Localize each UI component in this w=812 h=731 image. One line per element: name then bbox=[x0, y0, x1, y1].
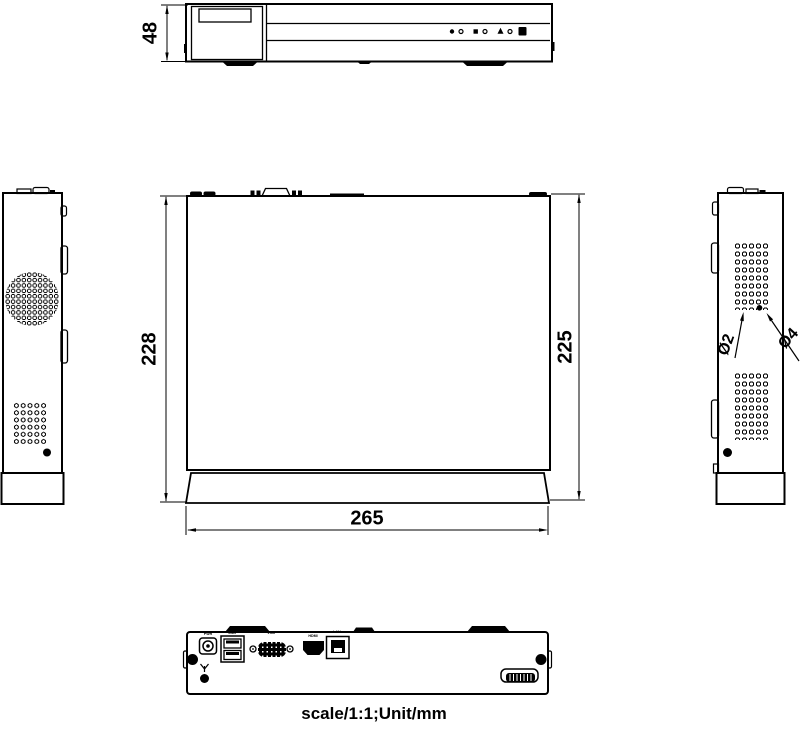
hdd-led-ring-icon bbox=[483, 30, 487, 34]
arrowhead bbox=[164, 493, 167, 502]
large-vent-hole bbox=[757, 305, 763, 311]
rear-tab bbox=[257, 191, 261, 197]
ir-window-icon bbox=[519, 27, 527, 36]
vga-screw-pin bbox=[252, 648, 254, 650]
side-nub bbox=[548, 651, 552, 668]
arrowhead bbox=[577, 491, 580, 500]
rear-tab bbox=[298, 191, 302, 197]
chassis-screw bbox=[536, 654, 547, 665]
right-side-bezel bbox=[717, 473, 785, 504]
rear-corner-bump bbox=[204, 192, 216, 197]
drawing-linework bbox=[0, 0, 812, 731]
vga-port-label: VGA bbox=[267, 631, 275, 635]
dimension-228 bbox=[160, 196, 188, 502]
rear-ridge bbox=[330, 194, 364, 197]
top-mark bbox=[50, 190, 55, 193]
power-led-icon bbox=[450, 29, 454, 33]
hdmi-port-label: HDMI bbox=[308, 634, 317, 638]
front-body-outline bbox=[186, 4, 552, 62]
front-left-nub bbox=[184, 44, 187, 53]
network-led-icon bbox=[498, 28, 504, 34]
arrowhead bbox=[767, 313, 774, 322]
power-jack-pin bbox=[206, 644, 210, 648]
arrowhead bbox=[187, 528, 196, 531]
left-side-body bbox=[3, 193, 62, 473]
vga-screw-pin bbox=[289, 648, 291, 650]
dimension-depth-body-label: 225 bbox=[555, 330, 578, 363]
top-body-outline bbox=[187, 196, 550, 470]
lan-port-label: LAN bbox=[333, 630, 340, 634]
arrowhead bbox=[577, 194, 580, 203]
dimension-48 bbox=[161, 5, 188, 62]
side-nub bbox=[184, 651, 188, 668]
arrowhead bbox=[164, 196, 167, 205]
power-port-label: PWR bbox=[204, 632, 212, 636]
arrowhead bbox=[165, 5, 168, 14]
lan-port-clip bbox=[334, 648, 342, 652]
rear-foot bbox=[353, 628, 375, 633]
front-foot-left bbox=[222, 62, 258, 67]
front-left-panel bbox=[192, 7, 263, 60]
dimension-width-label: 265 bbox=[350, 508, 383, 531]
front-foot-right bbox=[462, 62, 508, 67]
rear-foot bbox=[467, 626, 510, 632]
scale-unit-caption: scale/1:1;Unit/mm bbox=[301, 704, 447, 724]
power-led-ring-icon bbox=[459, 30, 463, 34]
technical-drawing: 48 228 225 265 Ø2 Ø4 PWR USB VGA HDMI LA… bbox=[0, 0, 812, 731]
front-foot-middle bbox=[357, 62, 372, 65]
screw-hole bbox=[723, 448, 732, 457]
usb-tongue bbox=[226, 641, 239, 644]
dimension-height-label: 48 bbox=[140, 22, 163, 44]
front-view bbox=[184, 4, 555, 66]
left-side-view bbox=[2, 188, 68, 505]
vga-connector-bump bbox=[262, 189, 290, 197]
left-side-bezel bbox=[2, 473, 64, 504]
rear-view bbox=[184, 626, 552, 694]
network-led-ring-icon bbox=[508, 30, 512, 34]
dimension-depth-overall-label: 228 bbox=[139, 332, 162, 365]
chassis-screw bbox=[187, 654, 198, 665]
arrowhead bbox=[740, 312, 744, 321]
hdmi-port bbox=[303, 641, 324, 655]
rear-tab bbox=[292, 191, 296, 197]
top-view bbox=[186, 189, 550, 504]
top-front-bezel bbox=[186, 473, 549, 503]
top-mark bbox=[760, 190, 766, 193]
rear-right-bump bbox=[529, 192, 547, 196]
ground-screw bbox=[200, 674, 209, 683]
front-right-nub bbox=[552, 42, 555, 51]
usb-port-label: USB bbox=[228, 631, 236, 635]
front-display-window bbox=[199, 9, 251, 22]
rear-tab bbox=[251, 191, 255, 197]
rear-corner-bump bbox=[190, 192, 202, 197]
arrowhead bbox=[539, 528, 548, 531]
ground-symbol-icon bbox=[205, 664, 209, 669]
callout-hole-small bbox=[735, 312, 744, 358]
hdd-led-icon bbox=[474, 29, 478, 33]
rear-slot bbox=[501, 669, 538, 682]
arrowhead bbox=[165, 53, 168, 62]
screw-hole bbox=[43, 449, 51, 457]
usb-tongue bbox=[226, 652, 239, 655]
